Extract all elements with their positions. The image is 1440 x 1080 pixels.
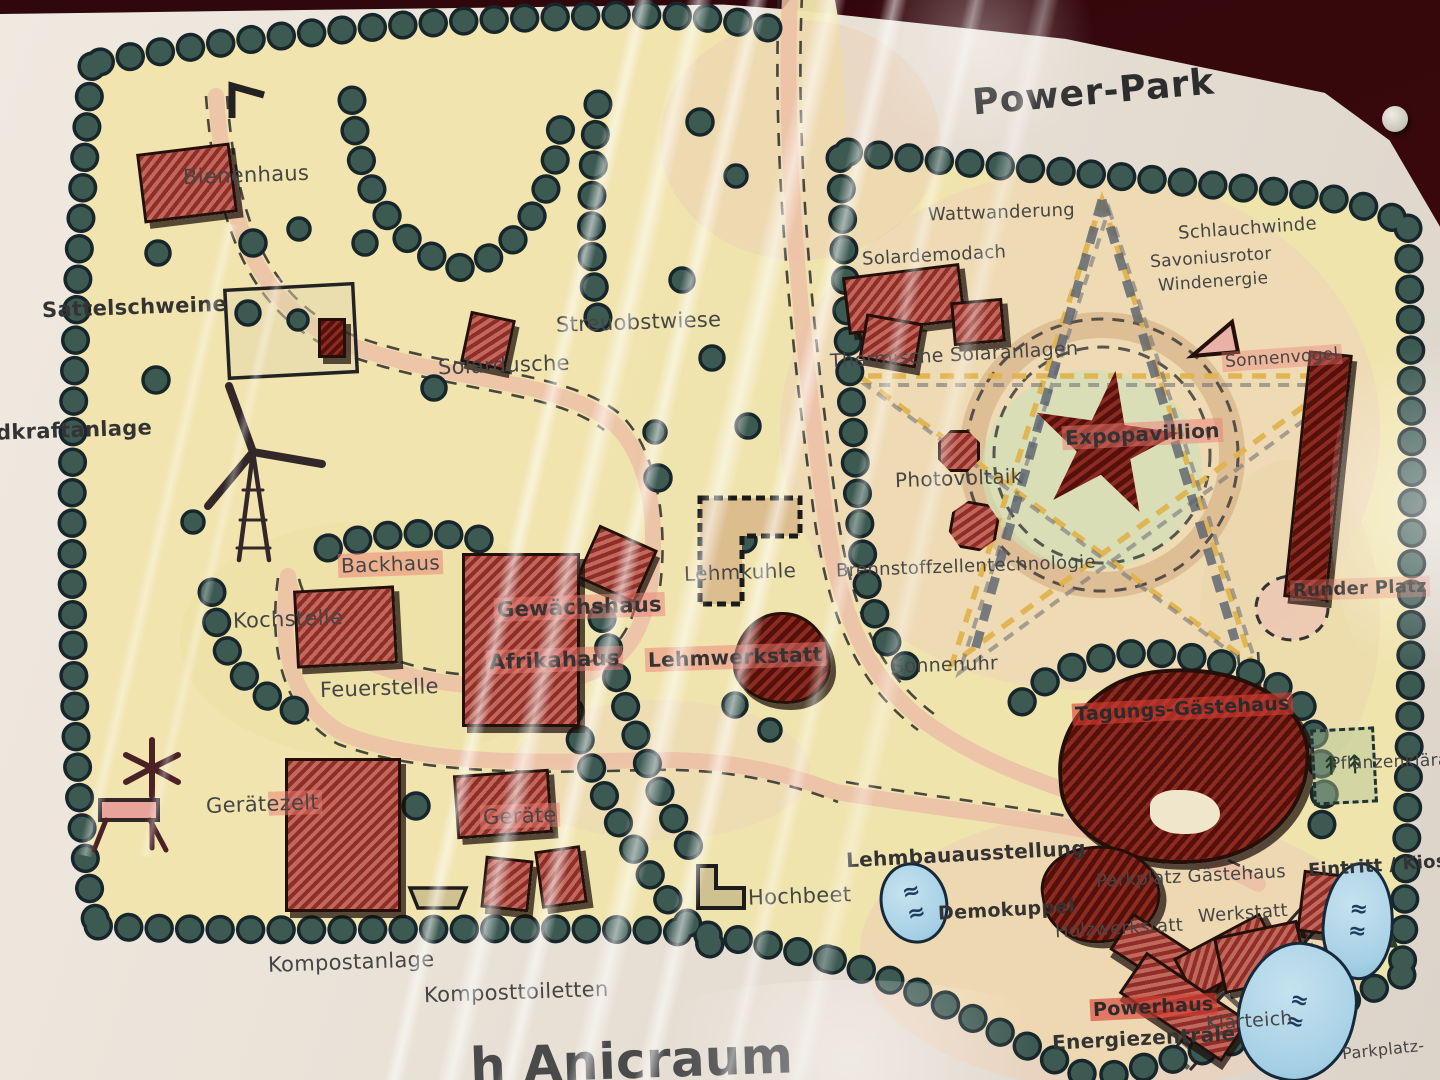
solaranlage-building-2: [950, 298, 1006, 346]
label-photovoltaik: Photovoltaik: [895, 464, 1023, 492]
label-bienenhaus: Bienenhaus: [183, 161, 310, 189]
shed-building-1: [480, 856, 533, 913]
pig-hut-building: [318, 318, 346, 358]
shed-building-2: [534, 845, 588, 909]
geraetezelt-building: [285, 758, 401, 912]
label-backhaus: Backhaus: [338, 550, 444, 578]
trough-icon: [410, 888, 466, 908]
label-afrikahaus: Afrikahaus: [486, 646, 623, 675]
label-solardusche: Solardusche: [438, 351, 571, 380]
tagungs-courtyard: [1150, 790, 1220, 834]
label-feuerstelle: Feuerstelle: [320, 674, 439, 702]
pin-icon: [1382, 106, 1408, 132]
label-sonnenuhr: Sonnenuhr: [892, 652, 999, 678]
gewaechshaus-afrikahaus-building: [462, 553, 580, 727]
label-lehmkuhle: Lehmkuhle: [684, 558, 797, 586]
photo-of-park-map: Power-Park Bienenhaus Sattelschweine dkr…: [0, 0, 1440, 1080]
label-geraetezelt: Gerätezelt: [203, 790, 323, 818]
label-geraete: Geräte: [480, 803, 560, 830]
label-pflanzenklaeranlage: Pflanzenkläran: [1330, 750, 1440, 775]
label-kochstelle: Kochstelle: [233, 605, 344, 633]
label-hochbeet: Hochbeet: [748, 882, 852, 910]
